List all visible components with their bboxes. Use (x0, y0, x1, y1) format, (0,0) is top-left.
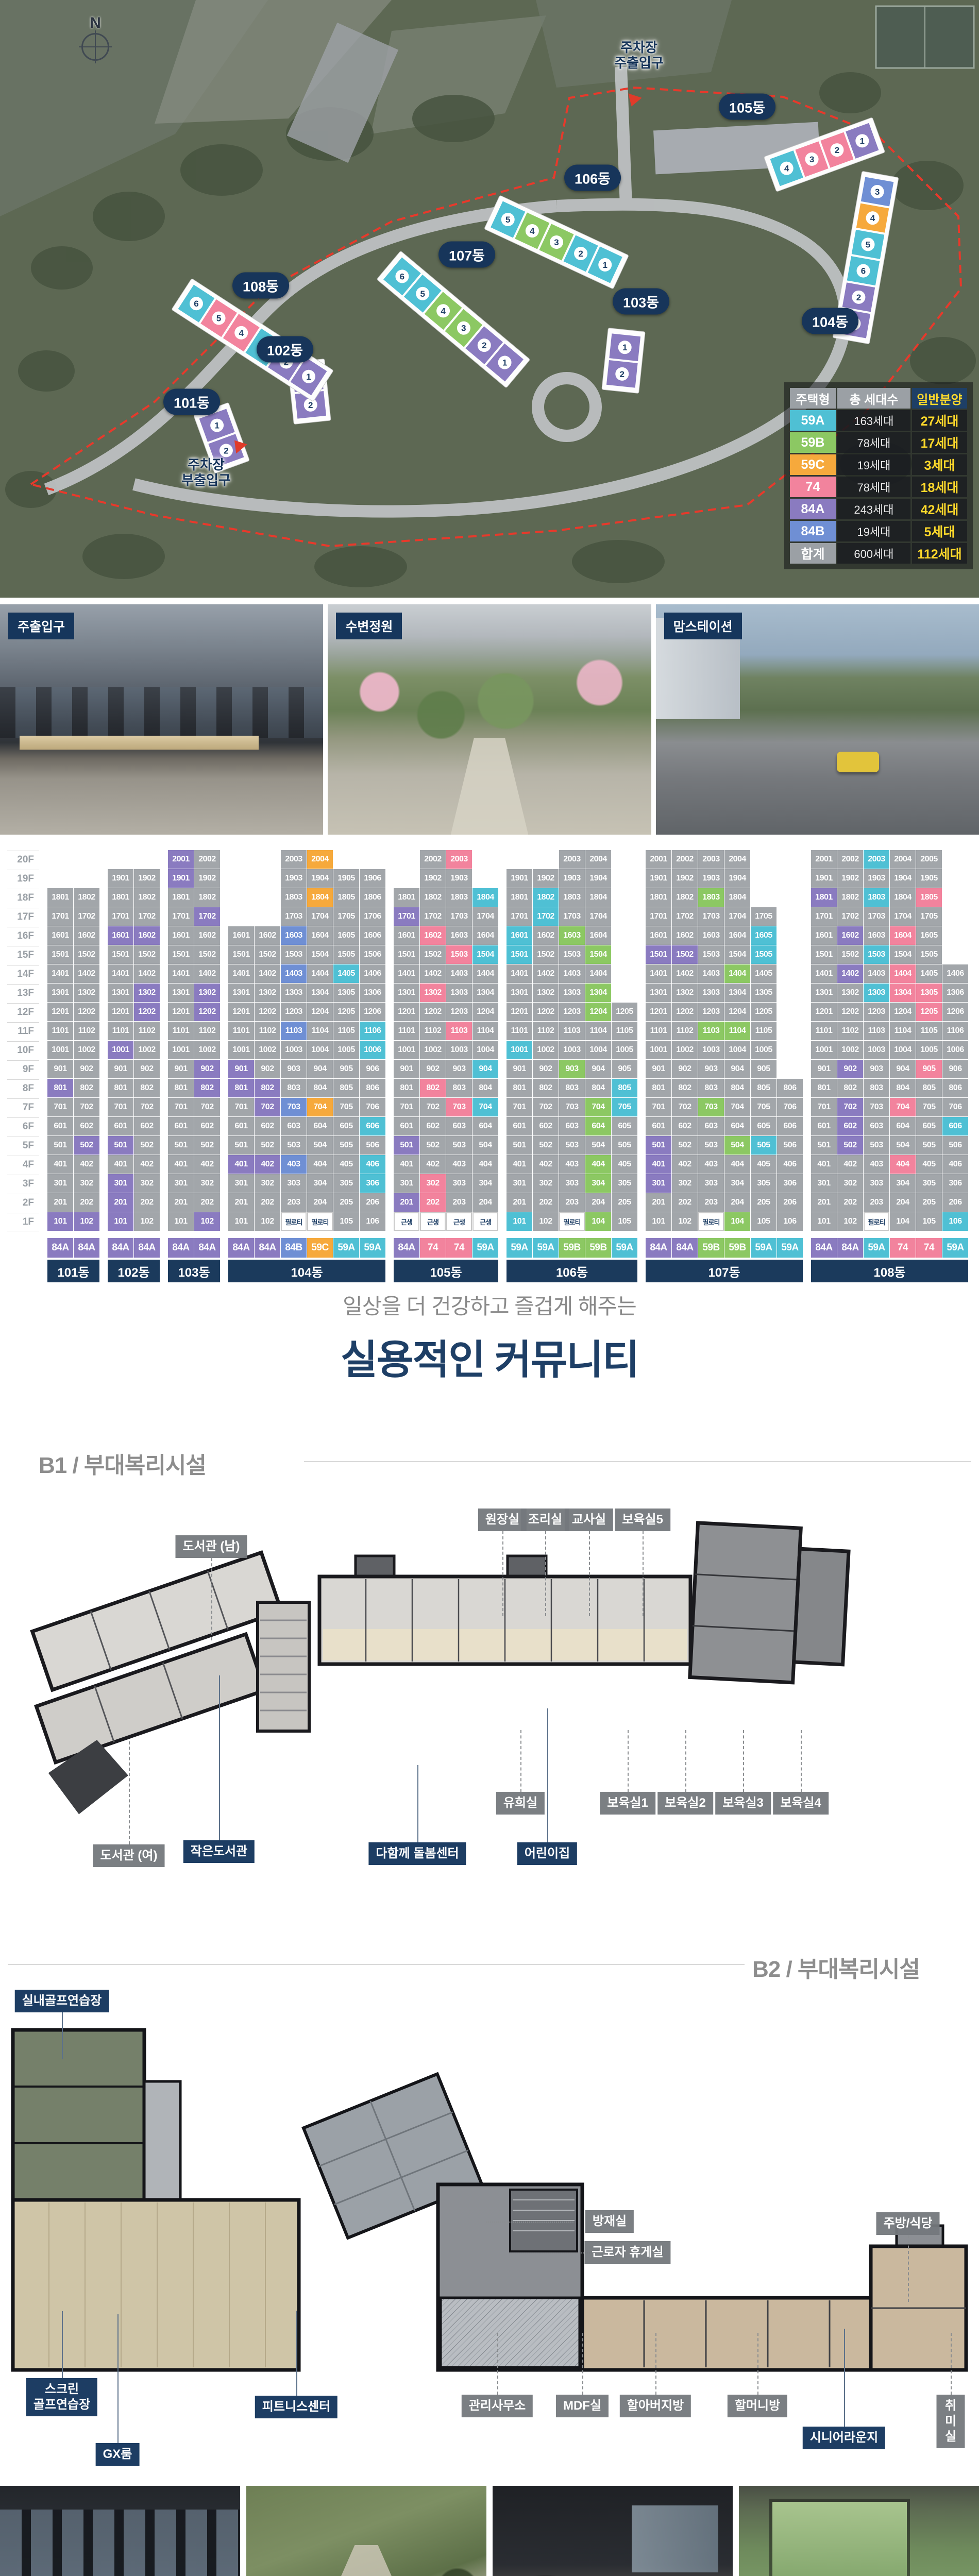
stack-cell: 1801 (394, 888, 419, 907)
stack-row: 15011502 (108, 945, 160, 964)
stack-cell: 301 (394, 1174, 419, 1193)
type-badge: 59A (942, 1238, 968, 1258)
stack-row: 14011402 (47, 964, 99, 983)
svg-text:1: 1 (306, 372, 311, 382)
stack-cell: 1804 (890, 888, 916, 907)
stack-cell: 505 (612, 1136, 637, 1155)
photo-detail (0, 687, 323, 738)
stack-cell: 706 (360, 1098, 385, 1116)
stack-cell: 401 (47, 1155, 73, 1174)
stack-cell: 205 (751, 1193, 777, 1212)
stack-cell: 102 (134, 1212, 160, 1231)
leader-line (545, 1531, 546, 1616)
stack-cell: 301 (507, 1174, 532, 1193)
stack-cell: 1204 (585, 1003, 611, 1021)
stack-cell: 1804 (307, 888, 333, 907)
stack-cell: 701 (646, 1098, 671, 1116)
plan-room-label: 원장실 (478, 1509, 527, 1531)
stack-row: 201202203204205206 (811, 1193, 968, 1212)
stack-cell: 403 (864, 1155, 889, 1174)
stack-row: 13011302 (108, 984, 160, 1002)
stack-cell: 1102 (255, 1022, 280, 1040)
stack-cell: 근생 (420, 1212, 446, 1231)
stack-cell: 502 (837, 1136, 863, 1155)
photo-mom: 맘스테이션 (656, 604, 979, 835)
stack-cell: 1305 (751, 984, 777, 1002)
stack-cell: 302 (420, 1174, 446, 1193)
type-badge: 59B (698, 1238, 724, 1258)
stack-cell: 1902 (672, 869, 698, 888)
stack-cell: 206 (777, 1193, 803, 1212)
stack-cell (942, 926, 968, 945)
photo-caption: 맘스테이션 (664, 613, 742, 639)
stack-row: 17011702170317041705 (811, 907, 968, 926)
stack-cell (228, 888, 254, 907)
type-badges: 84A84A59A747459A (811, 1238, 968, 1258)
stack-row: 17011702 (168, 907, 220, 926)
stack-cell: 405 (612, 1155, 637, 1174)
stack-cell: 1305 (916, 984, 942, 1002)
stack-cell (777, 1041, 803, 1059)
type-badge: 84A (134, 1238, 160, 1258)
stack-cell: 304 (724, 1174, 750, 1193)
stack-cell (228, 850, 254, 869)
stack-cell: 304 (307, 1174, 333, 1193)
stack-cell: 204 (585, 1193, 611, 1212)
stack-cell: 402 (533, 1155, 559, 1174)
stack-cell: 1601 (507, 926, 532, 945)
stack-cell: 1304 (472, 984, 498, 1002)
page: 121212345621432154321654321654321 N 주차장 … (0, 0, 979, 2576)
svg-text:4: 4 (784, 164, 789, 174)
stack-cell: 302 (74, 1174, 99, 1193)
stack-cell: 501 (108, 1136, 133, 1155)
stack-cell: 803 (559, 1079, 585, 1097)
svg-text:3: 3 (875, 187, 880, 197)
stack-row: 16011602 (168, 926, 220, 945)
total-units-cell: 243세대 (837, 499, 910, 519)
leader-line (219, 1675, 220, 1840)
stack-row: 101102필로티104105106 (811, 1212, 968, 1231)
stack-row: 19021903 (394, 869, 498, 888)
stack-cell: 202 (74, 1193, 99, 1212)
stack-cell (533, 850, 559, 869)
stack-cell: 1403 (446, 964, 472, 983)
stack-cell: 102 (74, 1212, 99, 1231)
stack-row: 17011702170317041705 (646, 907, 803, 926)
stack-cell: 1601 (811, 926, 837, 945)
floor-label: 2F (7, 1194, 39, 1212)
stack-cell: 801 (108, 1079, 133, 1097)
stack-cell (360, 850, 385, 869)
stack-cell: 1802 (837, 888, 863, 907)
stack-cell: 1803 (698, 888, 724, 907)
stack-cell: 2002 (420, 850, 446, 869)
stack-cell: 2003 (446, 850, 472, 869)
stack-cell: 1701 (108, 907, 133, 926)
stack-cell: 2003 (281, 850, 307, 869)
stack-cell: 1805 (916, 888, 942, 907)
stack-cell: 1601 (168, 926, 194, 945)
stack-cell: 1406 (942, 964, 968, 983)
type-badge: 84A (811, 1238, 837, 1258)
stack-cell: 1002 (134, 1041, 160, 1059)
building-badge: 103동 (613, 289, 669, 315)
stack-cell (255, 869, 280, 888)
stack-cell: 905 (916, 1060, 942, 1078)
stack-cell: 필로티 (281, 1212, 307, 1231)
stack-cell: 1901 (168, 869, 194, 888)
stack-row: 20012002 (168, 850, 220, 869)
stack-cell: 1004 (307, 1041, 333, 1059)
stack-row: 901902903904905906 (228, 1060, 385, 1078)
leader-line (117, 2314, 119, 2443)
stack-row: 1101110211031104 (394, 1022, 498, 1040)
stack-cell: 503 (281, 1136, 307, 1155)
stack-cell: 1403 (559, 964, 585, 983)
stack-cell: 702 (194, 1098, 220, 1116)
stack-cell: 104 (890, 1212, 916, 1231)
stack-cell: 1901 (811, 869, 837, 888)
stack-row: 14011402 (108, 964, 160, 983)
stack-row: 16011602 (108, 926, 160, 945)
stack-cell: 501 (811, 1136, 837, 1155)
type-badge: 84A (837, 1238, 863, 1258)
stack-row: 801802 (47, 1079, 99, 1097)
stack-row: 1601160216031604 (507, 926, 637, 945)
stack-cell: 1101 (507, 1022, 532, 1040)
stack-cell (394, 869, 419, 888)
stack-cell: 903 (698, 1060, 724, 1078)
stack-cell: 1202 (74, 1003, 99, 1021)
stack-row: 1301130213031304 (394, 984, 498, 1002)
stack-cell: 1904 (585, 869, 611, 888)
stack-cell: 1301 (168, 984, 194, 1002)
stack-row: 701702703704705706 (228, 1098, 385, 1116)
stack-cell (777, 907, 803, 926)
plan-room-label: 다함께 돌봄센터 (368, 1842, 466, 1865)
svg-text:2: 2 (856, 293, 861, 302)
stack-row: 201202203204205206 (228, 1193, 385, 1212)
stack-cell: 402 (74, 1155, 99, 1174)
stack-cell: 402 (837, 1155, 863, 1174)
stack-cell: 102 (255, 1212, 280, 1231)
stack-cell: 304 (585, 1174, 611, 1193)
stack-row: 12011202 (168, 1003, 220, 1021)
type-badge: 59A (472, 1238, 498, 1258)
stack-cell: 1802 (194, 888, 220, 907)
type-badge: 74 (420, 1238, 446, 1258)
stack-cell: 1003 (698, 1041, 724, 1059)
stack-cell (612, 907, 637, 926)
stack-cell: 401 (108, 1155, 133, 1174)
svg-text:5: 5 (216, 314, 221, 324)
stack-cell: 1603 (864, 926, 889, 945)
stack-row: 100110021003100410051006 (228, 1041, 385, 1059)
stack-cell: 1306 (360, 984, 385, 1002)
stack-cell: 1205 (751, 1003, 777, 1021)
stack-building: 2001200219011902180118021701170216011602… (168, 850, 220, 1282)
stack-cell: 705 (916, 1098, 942, 1116)
stack-cell: 702 (533, 1098, 559, 1116)
stack-cell: 1702 (74, 907, 99, 926)
stack-cell: 404 (585, 1155, 611, 1174)
stack-cell: 1806 (360, 888, 385, 907)
stack-cell: 503 (559, 1136, 585, 1155)
stack-cell: 306 (360, 1174, 385, 1193)
stack-cell: 606 (777, 1117, 803, 1136)
stack-cell: 1403 (698, 964, 724, 983)
stack-cell: 1205 (612, 1003, 637, 1021)
total-units-cell: 19세대 (837, 454, 910, 475)
floor-label: 19F (7, 870, 39, 888)
stack-row: 1901190219031904 (646, 869, 803, 888)
stack-row: 101102필로티필로티105106 (228, 1212, 385, 1231)
stack-row: 401402 (47, 1155, 99, 1174)
stack-cell: 1702 (134, 907, 160, 926)
stack-cell: 203 (864, 1193, 889, 1212)
table-header: 주택형 (790, 388, 836, 409)
stack-cell: 1201 (228, 1003, 254, 1021)
stack-cell: 902 (672, 1060, 698, 1078)
svg-text:4: 4 (530, 226, 535, 236)
stack-cell: 1404 (472, 964, 498, 983)
stack-cell: 1202 (533, 1003, 559, 1021)
stack-cell (777, 984, 803, 1002)
stack-row: 301302303304305 (507, 1174, 637, 1193)
type-badge: 59B (559, 1238, 585, 1258)
floor-label: 11F (7, 1022, 39, 1041)
svg-text:1: 1 (214, 421, 219, 431)
stack-building: 1901190218011802170117021601160215011502… (108, 869, 160, 1282)
stack-cell: 1902 (194, 869, 220, 888)
stack-row: 201202 (47, 1193, 99, 1212)
stack-cell: 502 (134, 1136, 160, 1155)
svg-text:3: 3 (461, 324, 466, 333)
stack-cell: 701 (228, 1098, 254, 1116)
stack-cell: 702 (672, 1098, 698, 1116)
stack-row: 301302303304305306 (228, 1174, 385, 1193)
stack-cell: 1905 (333, 869, 359, 888)
plan-room-label: 스크린 골프연습장 (26, 2378, 97, 2416)
stack-cell: 805 (751, 1079, 777, 1097)
stack-cell: 1102 (672, 1022, 698, 1040)
stack-cell: 902 (74, 1060, 99, 1078)
stack-cell (255, 907, 280, 926)
stack-cell: 901 (507, 1060, 532, 1078)
stack-cell: 402 (672, 1155, 698, 1174)
stack-row: 20032004 (507, 850, 637, 869)
stack-cell: 1104 (724, 1022, 750, 1040)
stack-cell: 201 (228, 1193, 254, 1212)
stack-cell: 1504 (585, 945, 611, 964)
stack-cell: 1601 (646, 926, 671, 945)
stack-cell: 1103 (281, 1022, 307, 1040)
stack-cell: 1206 (360, 1003, 385, 1021)
stack-row: 901902 (168, 1060, 220, 1078)
stack-cell: 401 (394, 1155, 419, 1174)
stack-row: 150115021503150415051506 (228, 945, 385, 964)
stack-cell: 1601 (47, 926, 73, 945)
stack-cell: 1903 (446, 869, 472, 888)
b2-header-line (8, 1964, 745, 1965)
stack-cell: 204 (724, 1193, 750, 1212)
stack-cell: 1304 (890, 984, 916, 1002)
stack-cell: 802 (255, 1079, 280, 1097)
stack-cell (228, 869, 254, 888)
stack-cell: 603 (864, 1117, 889, 1136)
stack-cell: 606 (942, 1117, 968, 1136)
stack-cell: 1502 (672, 945, 698, 964)
type-badge: 59A (751, 1238, 777, 1258)
stack-row: 701702703704705706 (811, 1098, 968, 1116)
stack-cell: 604 (724, 1117, 750, 1136)
stack-cell: 801 (228, 1079, 254, 1097)
stack-cell: 1204 (307, 1003, 333, 1021)
stack-cell: 301 (646, 1174, 671, 1193)
stack-row: 20032004 (228, 850, 385, 869)
stack-cell: 1501 (811, 945, 837, 964)
stack-cell: 1704 (307, 907, 333, 926)
stack-row: 19011902190319041905 (811, 869, 968, 888)
stack-cell: 1402 (134, 964, 160, 983)
stack-cell: 1804 (585, 888, 611, 907)
stack-cell: 705 (612, 1098, 637, 1116)
stack-cell: 206 (360, 1193, 385, 1212)
stack-cell: 802 (420, 1079, 446, 1097)
stack-row: 201202 (168, 1193, 220, 1212)
stack-cell: 305 (333, 1174, 359, 1193)
stack-cell: 근생 (394, 1212, 419, 1231)
stack-cell: 1801 (811, 888, 837, 907)
stack-cell: 1404 (307, 964, 333, 983)
stack-cell: 305 (751, 1174, 777, 1193)
stack-row: 301302 (108, 1174, 160, 1193)
photo-caption: 주출입구 (8, 613, 74, 639)
stack-cell: 302 (134, 1174, 160, 1193)
stack-cell: 1404 (890, 964, 916, 983)
stack-cell: 904 (585, 1060, 611, 1078)
stack-cell: 206 (942, 1193, 968, 1212)
stack-cell: 1801 (507, 888, 532, 907)
stack-row: 1501150215031504 (507, 945, 637, 964)
stack-cell: 2004 (724, 850, 750, 869)
stack-cell: 1202 (255, 1003, 280, 1021)
stack-cell: 1204 (890, 1003, 916, 1021)
stack-cell: 1703 (281, 907, 307, 926)
stack-cell: 904 (890, 1060, 916, 1078)
stack-row: 401402 (108, 1155, 160, 1174)
stack-cell: 705 (333, 1098, 359, 1116)
stack-row: 301302303304305306 (646, 1174, 803, 1193)
stack-cell: 205 (916, 1193, 942, 1212)
photo-detail (837, 752, 879, 772)
table-row: 84B19세대5세대 (790, 521, 967, 541)
stack-cell: 303 (281, 1174, 307, 1193)
stack-cell: 2002 (837, 850, 863, 869)
stack-cell: 902 (837, 1060, 863, 1078)
stack-cell: 1103 (698, 1022, 724, 1040)
stack-row: 201202203204 (394, 1193, 498, 1212)
stack-cell: 702 (74, 1098, 99, 1116)
stack-cell: 1502 (533, 945, 559, 964)
building-badge: 107동 (438, 242, 495, 268)
headline: 일상을 더 건강하고 즐겁게 해주는 실용적인 커뮤니티 (0, 1289, 979, 1385)
stack-cell: 601 (394, 1117, 419, 1136)
stack-cell: 903 (446, 1060, 472, 1078)
floor-label: 7F (7, 1098, 39, 1117)
stack-row: 201202203204205 (507, 1193, 637, 1212)
stack-cell: 2001 (646, 850, 671, 869)
stack-row: 1401140214031404 (394, 964, 498, 983)
stack-cell: 1602 (420, 926, 446, 945)
stack-cell: 406 (360, 1155, 385, 1174)
plan-room-label: 도서관 (남) (176, 1535, 247, 1558)
stack-cell: 1503 (559, 945, 585, 964)
stack-cell: 1703 (559, 907, 585, 926)
stack-row: 10011002100310041005 (646, 1041, 803, 1059)
stack-cell: 1502 (194, 945, 220, 964)
type-badges: 84A84A (168, 1238, 220, 1258)
stack-row: 140114021403140414051406 (811, 964, 968, 983)
stack-row: 15011502 (47, 945, 99, 964)
stack-cell: 305 (612, 1174, 637, 1193)
stack-cell: 1001 (646, 1041, 671, 1059)
type-badge: 84A (194, 1238, 220, 1258)
stack-building: 2001200220032004190119021903190418011802… (646, 850, 803, 1282)
stack-row: 14011402 (168, 964, 220, 983)
stack-cell: 1101 (47, 1022, 73, 1040)
stack-row: 601602603604 (394, 1117, 498, 1136)
svg-text:1: 1 (622, 343, 627, 352)
b1-floor-plan (0, 1484, 979, 1886)
stack-row: 801802803804 (394, 1079, 498, 1097)
stack-row: 201202 (108, 1193, 160, 1212)
stack-cell: 706 (942, 1098, 968, 1116)
stack-cell: 1504 (890, 945, 916, 964)
stack-cell: 306 (777, 1174, 803, 1193)
stack-cell: 1602 (672, 926, 698, 945)
stack-cell: 704 (472, 1098, 498, 1116)
stack-cell: 202 (533, 1193, 559, 1212)
building-name: 107동 (646, 1260, 803, 1282)
plan-room-label: 취미실 (937, 2395, 965, 2448)
stack-cell (472, 850, 498, 869)
stack-row: 20012002200320042005 (811, 850, 968, 869)
stack-cell (612, 926, 637, 945)
stack-row: 1801180218031804 (507, 888, 637, 907)
floor-label: 14F (7, 965, 39, 984)
stack-row: 901902903904905 (507, 1060, 637, 1078)
stack-cell: 202 (194, 1193, 220, 1212)
stack-cell (777, 1022, 803, 1040)
stack-cell: 1201 (108, 1003, 133, 1021)
stack-cell: 806 (777, 1079, 803, 1097)
stack-cell: 105 (751, 1212, 777, 1231)
stack-cell: 101 (811, 1212, 837, 1231)
stack-cell: 205 (612, 1193, 637, 1212)
plan-room-label: 보육실1 (600, 1792, 655, 1815)
stack-cell: 301 (811, 1174, 837, 1193)
leader-line (844, 2329, 845, 2427)
compass-icon (81, 33, 109, 61)
stack-cell: 1406 (360, 964, 385, 983)
stack-building: 1801180217011702160116021501150214011402… (47, 888, 99, 1282)
stack-cell: 1401 (507, 964, 532, 983)
stack-cell: 1304 (585, 984, 611, 1002)
svg-text:4: 4 (441, 306, 446, 316)
stack-cell: 901 (811, 1060, 837, 1078)
